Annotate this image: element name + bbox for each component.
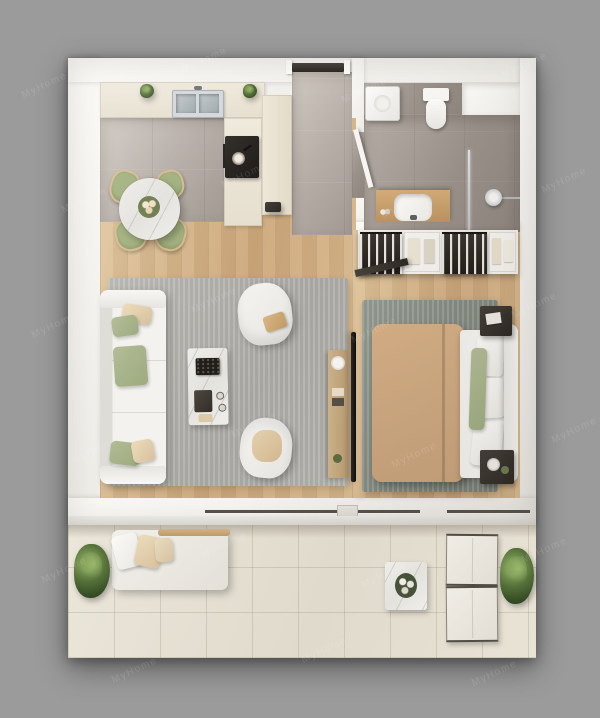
folded-clothes [492, 238, 501, 264]
tv [351, 332, 356, 482]
sofa-pillow-sage-2 [113, 345, 149, 387]
storage-basket [504, 240, 513, 262]
washing-machine [365, 86, 400, 121]
cooktop [225, 136, 259, 178]
console-round-plate [331, 356, 345, 370]
bed-lumbar-pillow-green [469, 348, 488, 431]
coffee-table-cup-1 [216, 392, 224, 400]
apartment-plan [68, 58, 536, 658]
vanity-bottles [380, 208, 390, 216]
daybed-wood-rail [158, 529, 230, 536]
nightstand-decor-plate [487, 458, 500, 471]
pan-on-cooktop [232, 152, 245, 165]
sink-basin-right [199, 94, 219, 113]
counter-plant-right [243, 84, 257, 98]
entry-hall-floor [292, 72, 352, 235]
wardrobe-shelf-right [489, 232, 516, 272]
counter-plant-left [140, 84, 154, 98]
window-sill-band [68, 516, 536, 525]
vanity-faucet [410, 215, 417, 220]
blanket-fold [442, 324, 445, 482]
sink-basin-left [176, 94, 196, 113]
media-console [328, 350, 348, 478]
pan-handle [243, 145, 252, 152]
shower-head [485, 189, 502, 206]
wall-right [520, 58, 536, 525]
console-vase [333, 454, 342, 463]
balcony-side-table [385, 562, 427, 610]
sofa-cushion-seam-2 [112, 412, 166, 413]
folded-clothes [408, 238, 420, 264]
wardrobe-shelf-left [404, 232, 440, 272]
wardrobe-hanging-clothes-right [442, 232, 487, 274]
window-glass-bedroom-2 [447, 510, 530, 513]
armchair-bottom-cushion [252, 430, 282, 462]
outdoor-chair-1 [446, 534, 498, 586]
cabinet-counter-decor [265, 202, 281, 212]
watermark-text: MyHome [110, 655, 159, 686]
daybed-pillow-beige-2 [154, 537, 174, 562]
toilet [423, 88, 449, 132]
sofa-pillow-tan [130, 438, 155, 463]
front-door [292, 63, 344, 72]
window-glass-bedroom-1 [358, 510, 420, 513]
nightstand-decor-plant [501, 466, 509, 474]
toilet-bowl [426, 99, 446, 129]
outdoor-chair-2 [446, 586, 498, 642]
washer-lid [374, 95, 391, 112]
front-door-post-right [344, 60, 350, 74]
table-flower-arrangement [395, 573, 417, 598]
coffee-table-pad [198, 414, 212, 422]
kitchen-faucet [194, 86, 202, 90]
storage-basket [424, 239, 435, 263]
floor-plan-render: MyHome MyHome MyHome MyHome MyHome MyHom… [0, 0, 600, 718]
sofa-armrest-bottom [100, 466, 166, 484]
coffee-table-tray [196, 358, 220, 375]
nightstand-bottom [480, 450, 514, 484]
watermark-text: MyHome [20, 70, 69, 101]
nightstand-top [480, 306, 512, 336]
tall-cabinet [262, 95, 292, 215]
bed-blanket [372, 324, 464, 482]
kitchen-sink [172, 90, 224, 118]
sofa-pillow-sage-1 [111, 314, 140, 337]
coffee-table-cup-2 [218, 404, 226, 412]
bathroom-corner-nook [462, 83, 520, 115]
coffee-table-book [194, 390, 212, 412]
nightstand-decor-tray [485, 312, 501, 325]
coffee-table [187, 348, 228, 426]
wall-left [68, 58, 100, 525]
watermark-text: MyHome [540, 165, 589, 196]
window-glass-living [205, 510, 337, 513]
console-books [332, 388, 344, 396]
watermark-text: MyHome [470, 658, 519, 689]
flower-centerpiece [138, 196, 160, 218]
shower-glass-screen [468, 150, 470, 230]
watermark-text: MyHome [550, 415, 599, 446]
